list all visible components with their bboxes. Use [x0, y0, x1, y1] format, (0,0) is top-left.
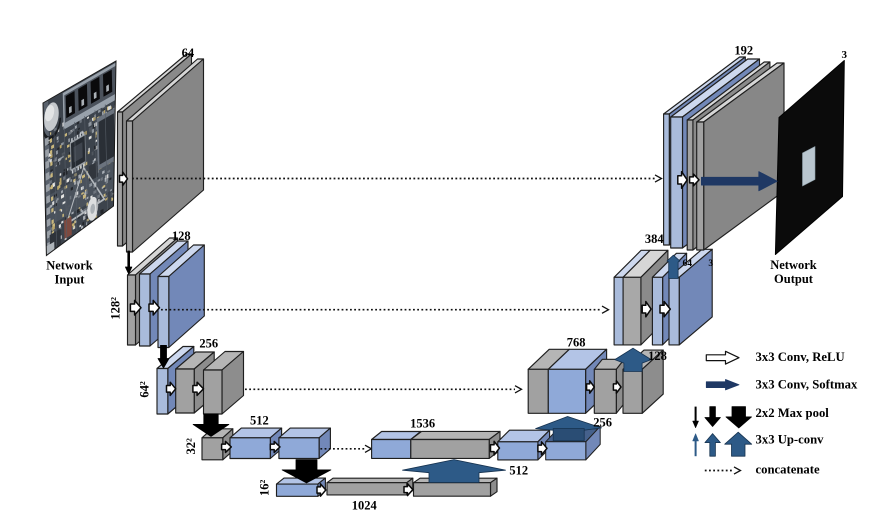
svg-text:1282: 1282 — [109, 297, 123, 320]
svg-text:322: 322 — [184, 438, 198, 455]
svg-text:256: 256 — [593, 416, 612, 430]
svg-text:Network: Network — [770, 258, 817, 272]
svg-text:128: 128 — [172, 229, 191, 243]
svg-text:128: 128 — [648, 349, 667, 363]
svg-text:Input: Input — [55, 273, 86, 287]
svg-text:concatenate: concatenate — [756, 463, 820, 477]
svg-text:1024: 1024 — [352, 499, 378, 513]
svg-text:3x3 Conv, ReLU: 3x3 Conv, ReLU — [756, 350, 845, 364]
svg-text:512: 512 — [250, 414, 269, 428]
svg-text:512: 512 — [509, 464, 528, 478]
svg-text:Output: Output — [774, 272, 814, 286]
svg-text:3x3 Conv, Softmax: 3x3 Conv, Softmax — [756, 378, 859, 392]
svg-text:3: 3 — [841, 49, 847, 61]
svg-text:768: 768 — [567, 336, 586, 350]
svg-text:256: 256 — [199, 337, 218, 351]
svg-text:3: 3 — [708, 259, 713, 269]
svg-text:192: 192 — [734, 44, 753, 58]
svg-text:64: 64 — [182, 46, 195, 60]
svg-text:2x2 Max pool: 2x2 Max pool — [756, 406, 830, 420]
svg-text:642: 642 — [138, 381, 152, 398]
svg-text:384: 384 — [645, 232, 665, 246]
svg-text:1536: 1536 — [410, 417, 435, 431]
svg-text:Network: Network — [46, 259, 93, 273]
svg-text:64: 64 — [682, 259, 692, 269]
svg-text:162: 162 — [258, 480, 272, 497]
svg-text:3x3 Up-conv: 3x3 Up-conv — [756, 433, 825, 447]
